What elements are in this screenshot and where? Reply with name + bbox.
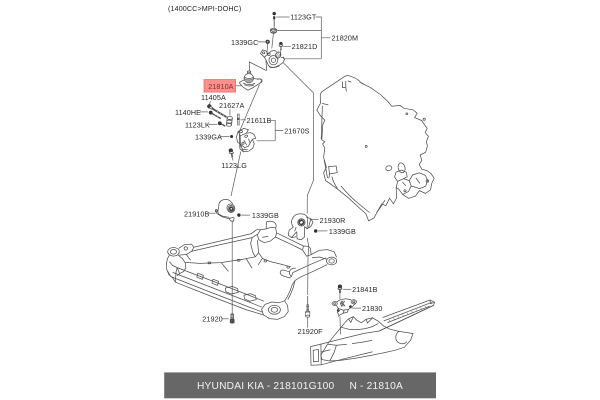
svg-text:21810A: 21810A [208, 82, 233, 91]
svg-text:21627A: 21627A [219, 101, 244, 110]
svg-text:1339GA: 1339GA [195, 133, 222, 142]
svg-text:21821D: 21821D [292, 42, 318, 51]
svg-text:1339GB: 1339GB [329, 227, 356, 236]
svg-text:1123LG: 1123LG [221, 161, 247, 170]
svg-text:HYUNDAI KIA - 218101G100: HYUNDAI KIA - 218101G100 N - 21810A [197, 381, 403, 392]
svg-text:1339GC: 1339GC [231, 38, 258, 47]
svg-text:21830: 21830 [362, 304, 383, 313]
svg-text:21611B: 21611B [247, 116, 272, 125]
svg-text:21820M: 21820M [332, 33, 359, 42]
svg-text:1140HE: 1140HE [175, 108, 201, 117]
svg-text:(1400CC>MPI-DOHC): (1400CC>MPI-DOHC) [168, 4, 241, 13]
svg-text:21670S: 21670S [284, 127, 309, 136]
svg-text:21930R: 21930R [320, 216, 346, 225]
svg-text:21920: 21920 [202, 315, 223, 324]
svg-text:21910B: 21910B [184, 209, 209, 218]
svg-text:21920F: 21920F [298, 327, 323, 336]
svg-text:1339GB: 1339GB [252, 211, 279, 220]
svg-text:1123GT: 1123GT [290, 13, 317, 22]
svg-text:1123LK: 1123LK [185, 120, 210, 129]
svg-text:21841B: 21841B [352, 285, 377, 294]
